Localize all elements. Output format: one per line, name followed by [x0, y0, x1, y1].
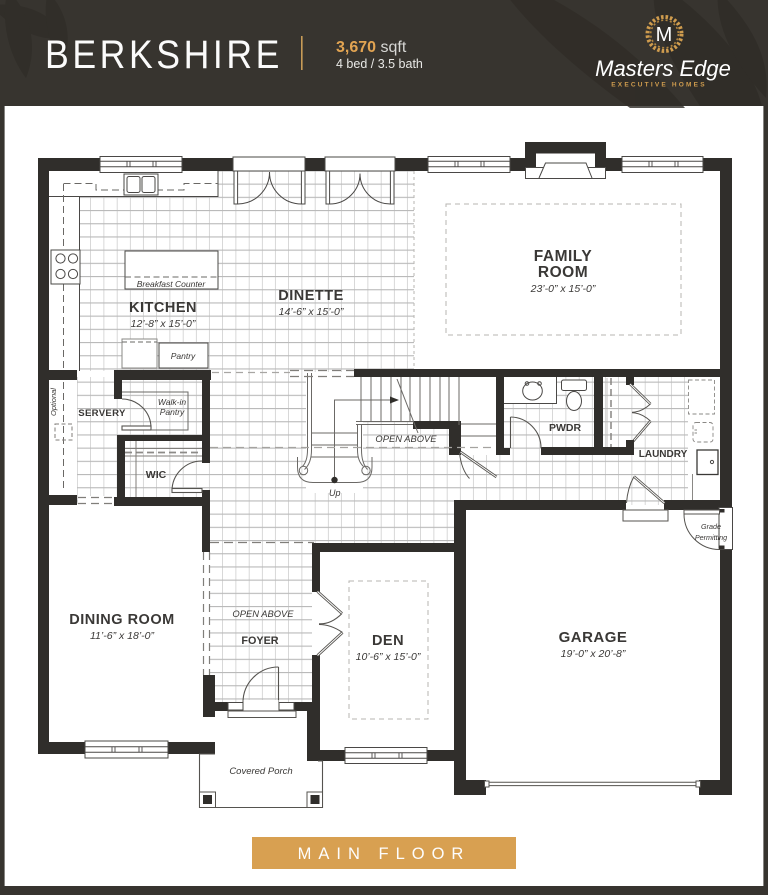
svg-text:14’-6” x 15’-0”: 14’-6” x 15’-0” — [279, 306, 344, 318]
svg-text:DEN: DEN — [372, 633, 404, 649]
svg-text:Optional: Optional — [49, 388, 58, 416]
svg-text:MAIN FLOOR: MAIN FLOOR — [298, 845, 471, 863]
svg-text:12’-8” x 15’-0”: 12’-8” x 15’-0” — [131, 318, 196, 330]
svg-text:Up: Up — [329, 488, 341, 498]
svg-text:Pantry: Pantry — [171, 351, 196, 361]
svg-text:Breakfast Counter: Breakfast Counter — [137, 279, 207, 289]
svg-text:3,670 sqft: 3,670 sqft — [336, 39, 407, 56]
svg-text:4 bed / 3.5 bath: 4 bed / 3.5 bath — [336, 57, 423, 71]
svg-text:Covered Porch: Covered Porch — [229, 766, 292, 777]
svg-text:Masters Edge: Masters Edge — [595, 56, 731, 81]
svg-text:ROOM: ROOM — [538, 264, 588, 281]
svg-text:Walk-in: Walk-in — [158, 397, 186, 407]
svg-text:DINING ROOM: DINING ROOM — [69, 612, 174, 628]
svg-text:KITCHEN: KITCHEN — [129, 300, 197, 316]
svg-text:Pantry: Pantry — [160, 407, 185, 417]
svg-text:23’-0” x 15’-0”: 23’-0” x 15’-0” — [530, 283, 596, 295]
svg-text:EXECUTIVE HOMES: EXECUTIVE HOMES — [611, 82, 706, 89]
svg-text:FAMILY: FAMILY — [534, 248, 593, 265]
svg-text:Permitting: Permitting — [695, 533, 727, 542]
svg-text:GARAGE: GARAGE — [559, 629, 628, 646]
svg-text:PWDR: PWDR — [549, 422, 581, 434]
svg-text:DINETTE: DINETTE — [278, 288, 344, 304]
svg-text:11’-6” x 18’-0”: 11’-6” x 18’-0” — [90, 630, 154, 642]
svg-text:BERKSHIRE: BERKSHIRE — [45, 33, 283, 77]
svg-text:OPEN ABOVE: OPEN ABOVE — [375, 433, 437, 444]
svg-text:Grade: Grade — [701, 522, 721, 531]
svg-text:10’-6” x 15’-0”: 10’-6” x 15’-0” — [356, 651, 421, 663]
svg-text:19’-0” x 20’-8”: 19’-0” x 20’-8” — [561, 648, 626, 660]
svg-text:OPEN ABOVE: OPEN ABOVE — [232, 608, 294, 619]
svg-text:M: M — [656, 24, 673, 46]
svg-text:WIC: WIC — [146, 469, 167, 481]
svg-text:SERVERY: SERVERY — [78, 408, 126, 419]
svg-text:LAUNDRY: LAUNDRY — [639, 449, 688, 460]
svg-text:FOYER: FOYER — [241, 635, 278, 647]
